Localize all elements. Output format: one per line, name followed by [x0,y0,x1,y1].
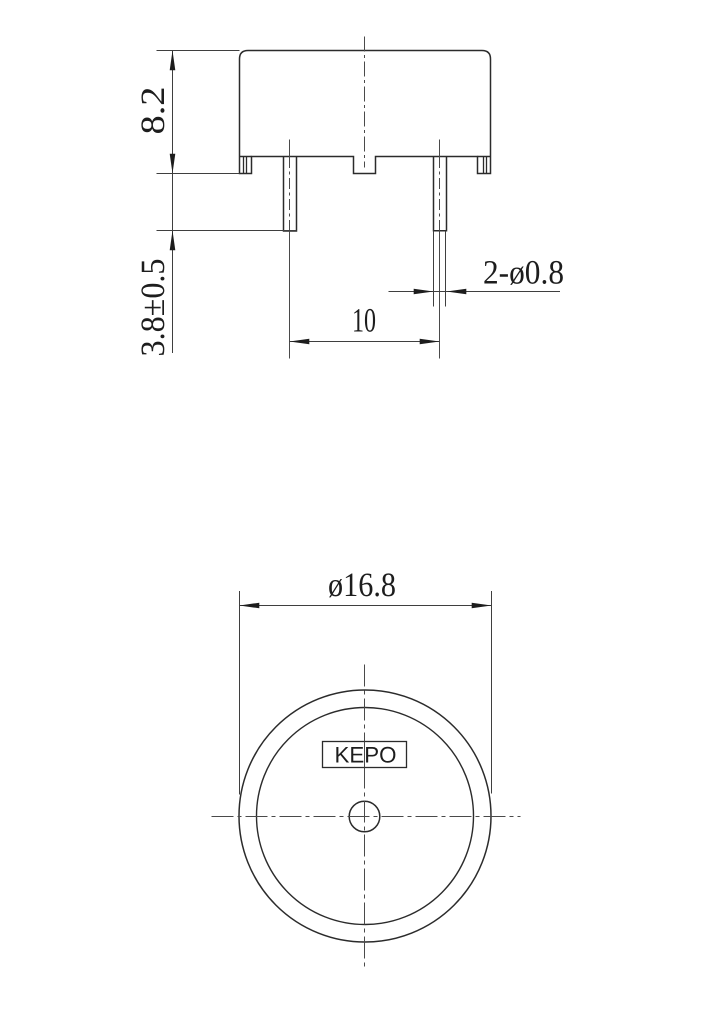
svg-text:ø16.8: ø16.8 [328,567,396,604]
svg-text:KEPO: KEPO [335,743,397,768]
svg-text:8.2: 8.2 [135,87,172,135]
svg-text:3.8±0.5: 3.8±0.5 [135,259,172,357]
svg-text:2-ø0.8: 2-ø0.8 [483,255,564,292]
svg-text:10: 10 [352,303,376,340]
